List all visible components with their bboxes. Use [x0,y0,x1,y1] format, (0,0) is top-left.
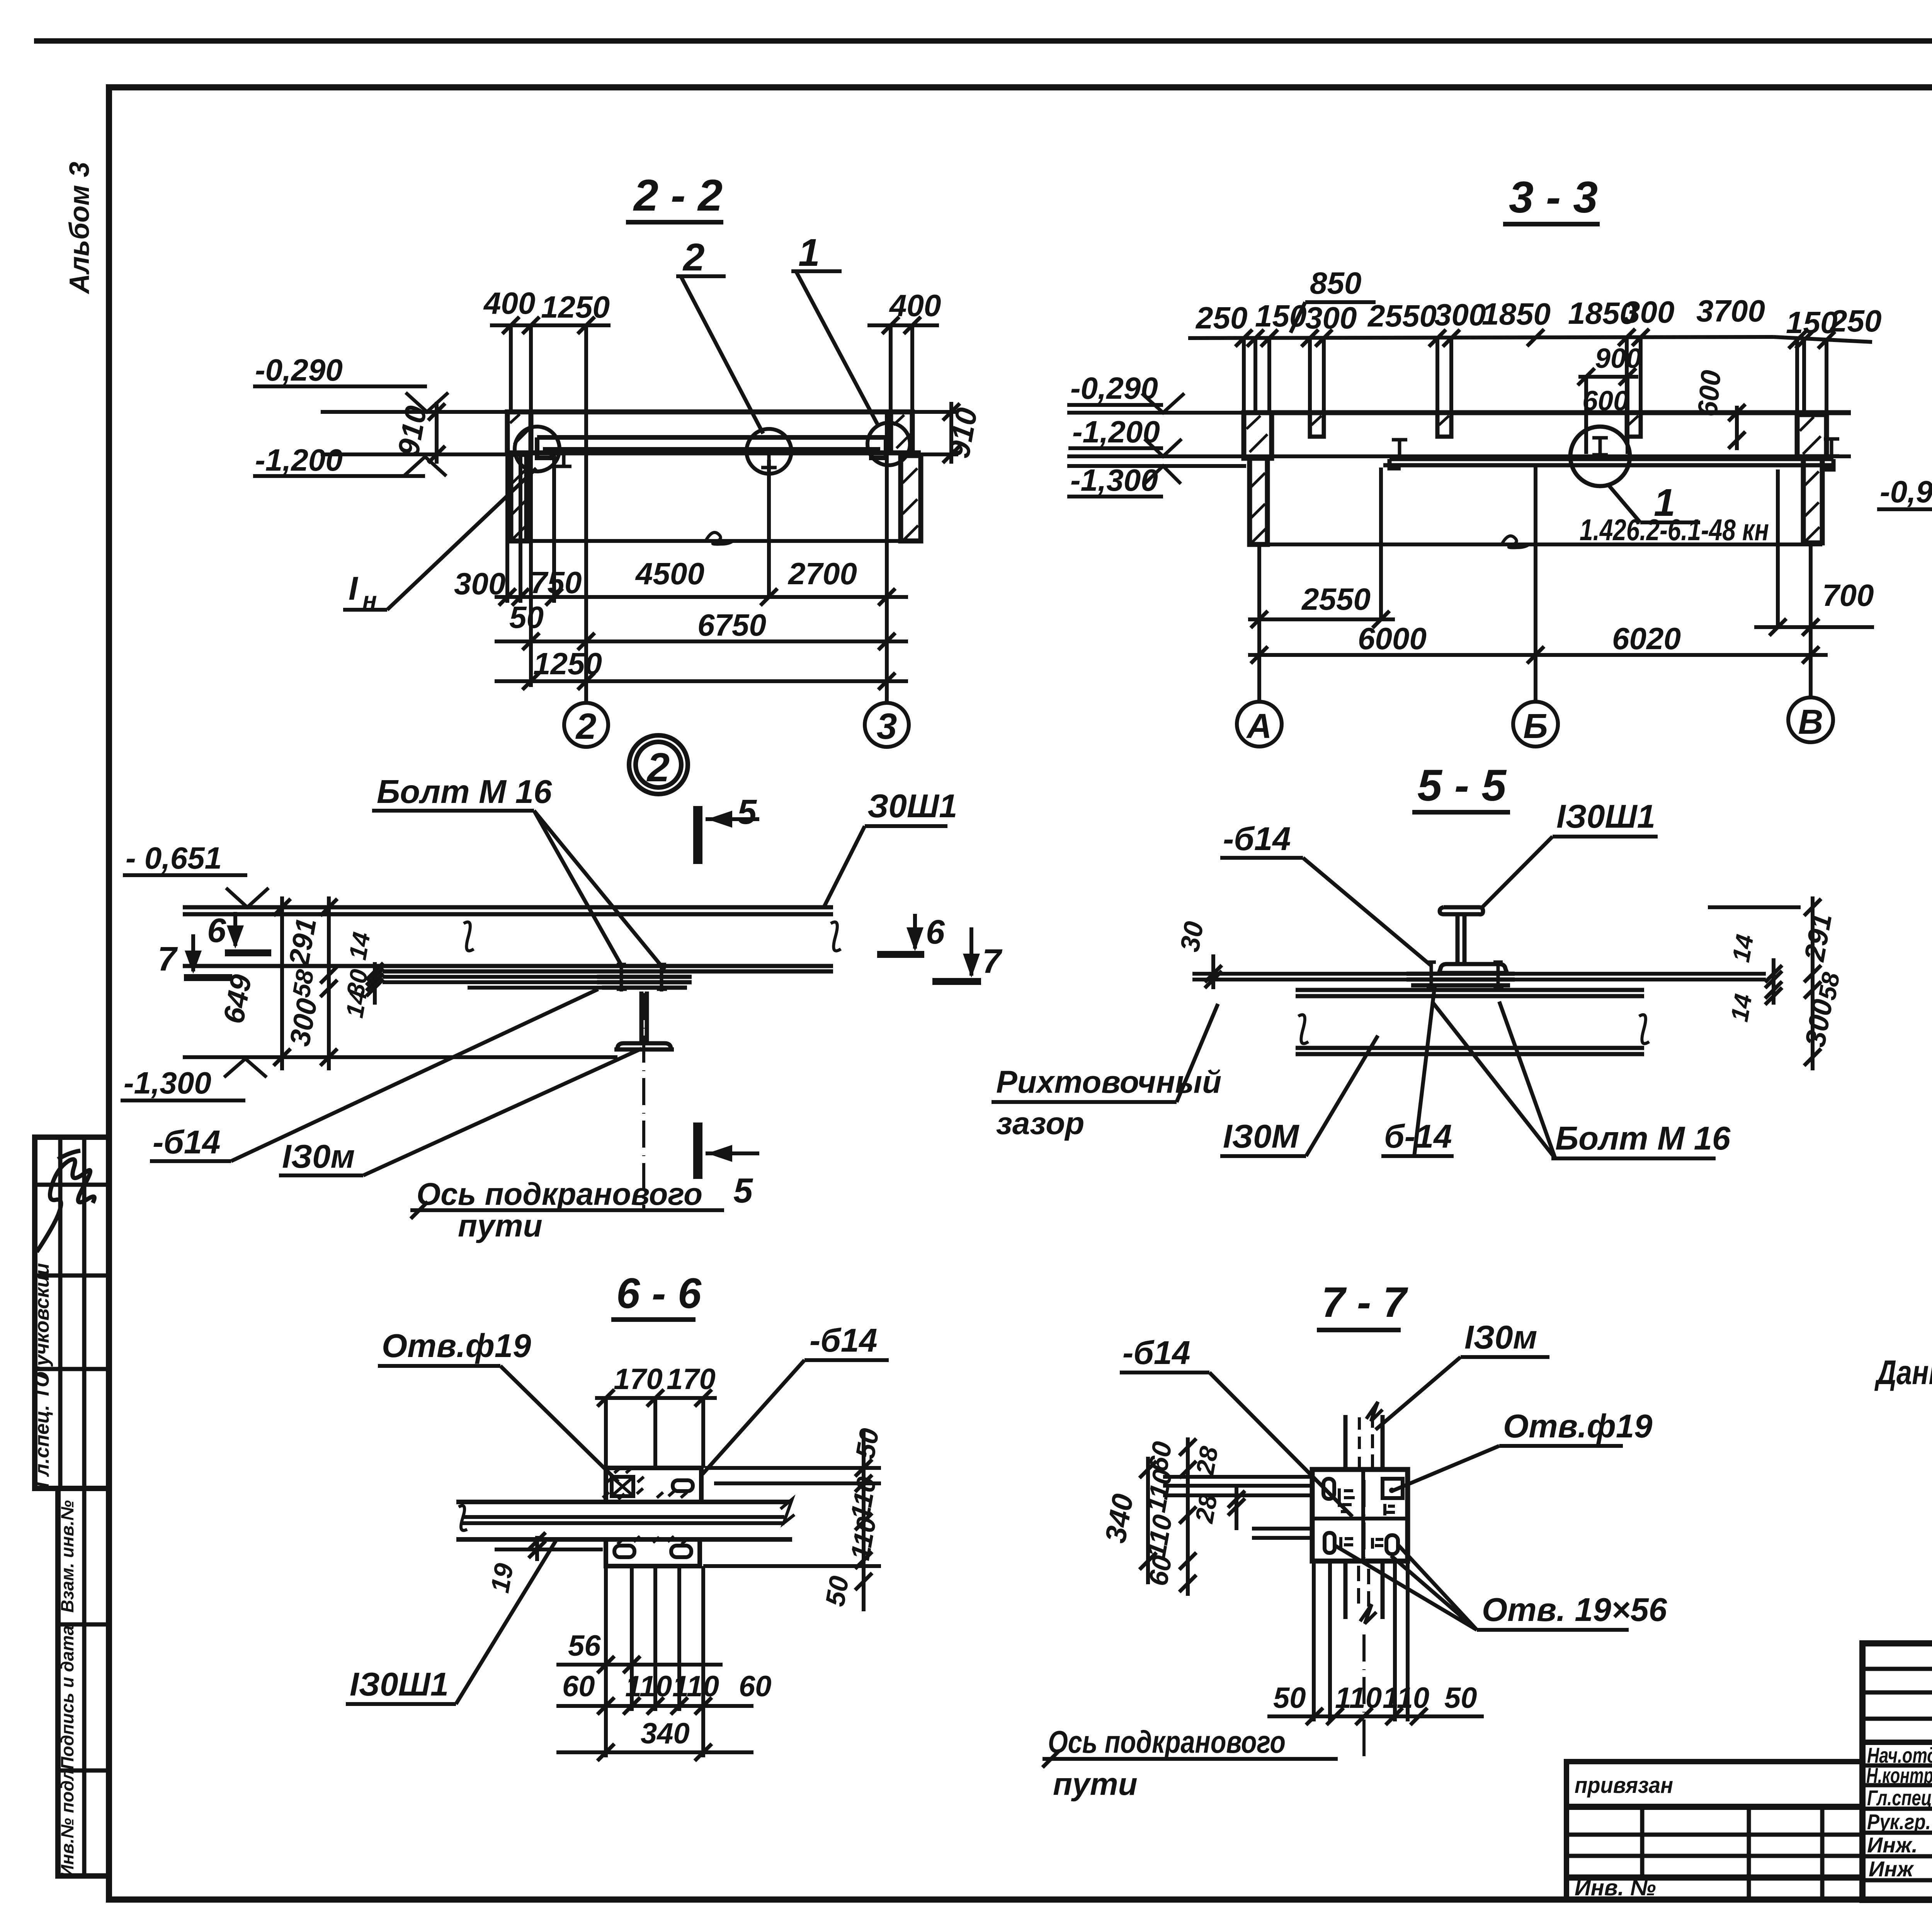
svg-text:I: I [349,570,359,607]
svg-text:58: 58 [287,967,319,999]
svg-text:400: 400 [483,286,535,320]
svg-text:Рук.гр.: Рук.гр. [1867,1810,1931,1834]
svg-text:-б14: -б14 [153,1124,220,1161]
svg-text:З0Ш1: З0Ш1 [867,788,957,825]
svg-text:Подпись и дата: Подпись и дата [57,1626,77,1770]
svg-text:Болт М 16: Болт М 16 [377,774,552,810]
svg-text:50: 50 [1444,1682,1477,1714]
svg-text:Отв.ф19: Отв.ф19 [382,1328,531,1364]
svg-text:50: 50 [509,600,544,634]
svg-text:2: 2 [575,706,597,747]
svg-text:14: 14 [1727,932,1759,964]
svg-text:2: 2 [646,745,670,790]
svg-text:Болт М 16: Болт М 16 [1555,1120,1731,1157]
svg-text:60: 60 [1143,1553,1177,1588]
svg-text:3: 3 [877,706,897,747]
svg-text:2 - 2: 2 - 2 [633,171,723,220]
svg-text:пути: пути [458,1208,543,1243]
svg-text:850: 850 [1310,266,1361,300]
svg-text:-б14: -б14 [810,1322,877,1359]
svg-text:Инв.№ подл: Инв.№ подл [57,1769,77,1878]
svg-text:50: 50 [820,1574,854,1609]
svg-text:14: 14 [1725,992,1757,1024]
svg-text:Инж: Инж [1869,1857,1914,1881]
svg-text:110: 110 [1383,1682,1429,1714]
svg-text:5: 5 [733,1172,753,1210]
svg-text:Н.контр.: Н.контр. [1866,1763,1932,1787]
svg-text:-1,200: -1,200 [1072,415,1160,449]
svg-text:250: 250 [1829,304,1881,338]
svg-text:Б: Б [1523,707,1548,746]
svg-text:150: 150 [1255,299,1306,333]
svg-text:-0,290: -0,290 [1070,371,1158,405]
svg-text:60: 60 [562,1670,595,1703]
svg-text:Отв.ф19: Отв.ф19 [1503,1408,1652,1445]
svg-text:-1,200: -1,200 [255,443,343,477]
svg-text:7: 7 [158,940,178,978]
svg-text:19: 19 [485,1561,519,1595]
svg-text:5: 5 [737,793,757,832]
svg-text:Ось подкранового: Ось подкранового [417,1177,702,1212]
svg-text:-0,942: -0,942 [1880,474,1932,509]
svg-text:300: 300 [1434,298,1486,332]
svg-text:Лучковский: Лучковский [31,1263,53,1382]
svg-text:- 0,651: - 0,651 [126,841,222,875]
svg-text:56: 56 [568,1629,601,1662]
svg-text:Данный лист смотреть с листом: Данный лист смотреть с листом 6 [1874,1353,1932,1391]
svg-text:300: 300 [1623,295,1674,329]
svg-text:-б14: -б14 [1223,821,1291,857]
svg-text:28: 28 [1190,1444,1223,1478]
svg-text:1.426.2-6.1-48 кн: 1.426.2-6.1-48 кн [1580,513,1769,547]
svg-text:2: 2 [682,236,705,279]
svg-text:7 - 7: 7 - 7 [1321,1279,1408,1326]
svg-text:1850: 1850 [1482,297,1551,331]
svg-text:1250: 1250 [541,290,610,324]
svg-text:А: А [1246,707,1272,746]
svg-text:Инж.: Инж. [1867,1833,1918,1857]
svg-text:170: 170 [614,1363,663,1396]
svg-text:IЗ0Ш1: IЗ0Ш1 [1556,798,1655,835]
svg-text:-1,300: -1,300 [124,1066,211,1100]
svg-text:В: В [1798,703,1823,742]
svg-text:Отв. 19×56: Отв. 19×56 [1482,1592,1667,1628]
svg-text:6020: 6020 [1612,621,1681,656]
svg-text:30: 30 [1174,919,1209,954]
svg-text:3700: 3700 [1696,294,1765,328]
svg-text:Инв. №: Инв. № [1575,1875,1656,1900]
svg-text:6 - 6: 6 - 6 [616,1270,702,1317]
svg-text:-б14: -б14 [1122,1335,1190,1371]
svg-text:Гл.спец.: Гл.спец. [1867,1786,1932,1810]
svg-text:3 - 3: 3 - 3 [1509,173,1598,222]
svg-text:пути: пути [1053,1767,1138,1802]
svg-text:Рихтовочный: Рихтовочный [996,1065,1221,1100]
svg-text:6000: 6000 [1358,621,1427,656]
svg-text:-1,300: -1,300 [1070,463,1158,497]
svg-text:2550: 2550 [1367,299,1437,333]
svg-text:340: 340 [641,1717,690,1750]
svg-text:50: 50 [850,1426,884,1461]
svg-text:50: 50 [1273,1682,1306,1714]
svg-text:Гл.спец. ТО: Гл.спец. ТО [31,1372,53,1488]
svg-text:-0,290: -0,290 [255,353,343,387]
svg-text:Ось подкранового: Ось подкранового [1048,1725,1286,1760]
svg-text:IЗ0М: IЗ0М [1223,1118,1300,1155]
svg-text:1: 1 [798,231,820,274]
svg-text:60: 60 [739,1670,772,1703]
svg-text:250: 250 [1195,301,1247,335]
svg-text:привязан: привязан [1575,1773,1673,1798]
svg-text:6: 6 [207,911,226,949]
svg-text:IЗ0м: IЗ0м [1464,1319,1537,1356]
svg-text:5 - 5: 5 - 5 [1417,761,1507,810]
svg-text:14: 14 [344,930,376,962]
svg-text:зазор: зазор [996,1106,1084,1141]
svg-text:Взам. инв.№: Взам. инв.№ [57,1500,77,1612]
svg-text:4500: 4500 [635,556,704,591]
svg-text:IЗ0Ш1: IЗ0Ш1 [350,1666,449,1703]
svg-text:700: 700 [1822,578,1874,612]
svg-text:6: 6 [926,913,945,951]
svg-text:6750: 6750 [697,608,766,642]
svg-text:Альбом 3: Альбом 3 [64,162,95,294]
svg-text:7: 7 [982,942,1003,980]
svg-text:2700: 2700 [787,556,857,591]
svg-text:2550: 2550 [1301,582,1371,616]
svg-text:IЗ0м: IЗ0м [282,1138,355,1175]
